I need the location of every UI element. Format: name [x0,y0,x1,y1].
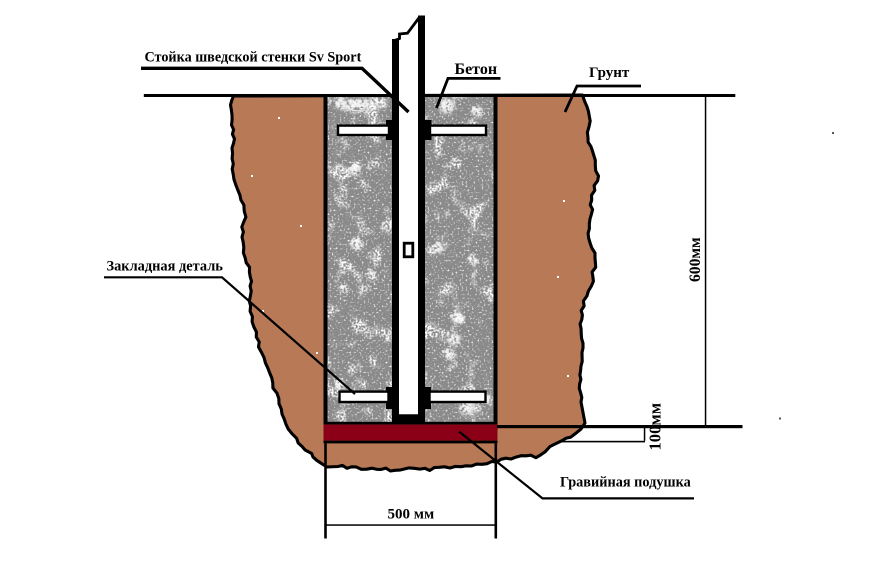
svg-text:100мм: 100мм [646,403,665,451]
svg-text:500 мм: 500 мм [388,506,435,522]
svg-text:Гравийная подушка: Гравийная подушка [560,475,691,491]
svg-text:Стойка шведской стенки Sv Spor: Стойка шведской стенки Sv Sport [145,50,362,66]
svg-text:600мм: 600мм [687,237,704,282]
svg-text:Грунт: Грунт [589,65,630,81]
svg-text:Бетон: Бетон [455,61,498,78]
svg-text:Закладная деталь: Закладная деталь [107,259,224,275]
